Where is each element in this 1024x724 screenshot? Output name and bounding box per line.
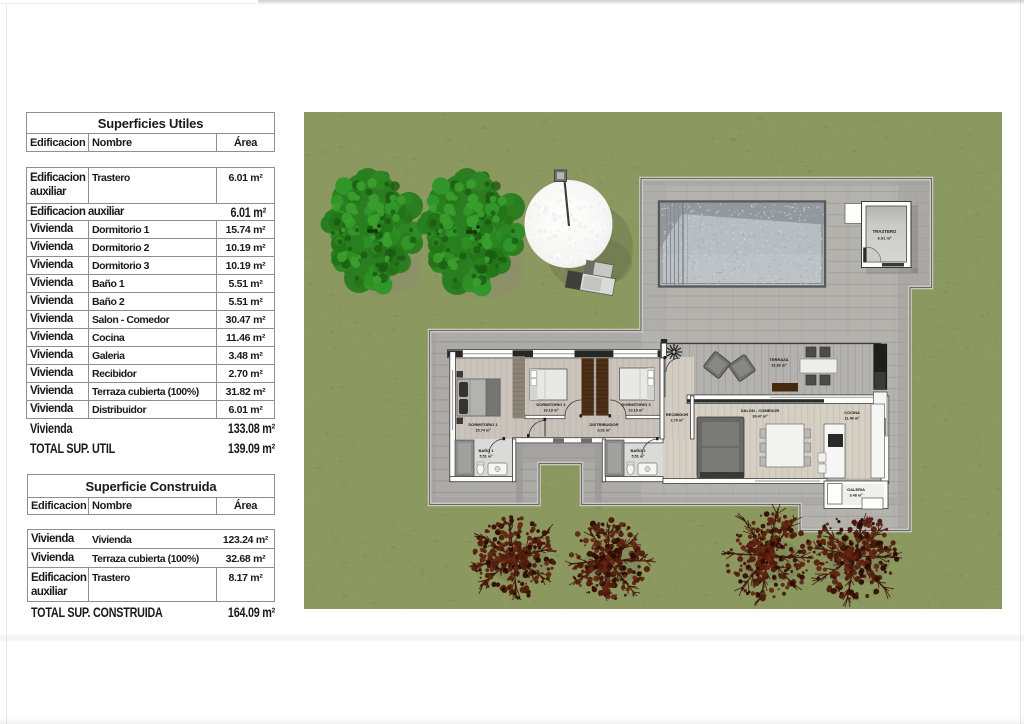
svg-text:DISTRIBUIDOR: DISTRIBUIDOR bbox=[590, 422, 619, 427]
svg-text:6.01 m²: 6.01 m² bbox=[597, 428, 611, 432]
svg-text:10.19 m²: 10.19 m² bbox=[628, 408, 644, 412]
svg-text:BAÑO 1: BAÑO 1 bbox=[478, 448, 494, 453]
svg-text:DORMITORIO 2: DORMITORIO 2 bbox=[536, 402, 566, 407]
svg-text:DORMITORIO 1: DORMITORIO 1 bbox=[468, 422, 498, 427]
svg-text:TERRAZA: TERRAZA bbox=[769, 357, 788, 362]
svg-text:DORMITORIO 3: DORMITORIO 3 bbox=[621, 402, 651, 407]
svg-text:BAÑO 2: BAÑO 2 bbox=[630, 448, 646, 453]
svg-text:10.19 m²: 10.19 m² bbox=[543, 408, 559, 412]
svg-text:30.47 m²: 30.47 m² bbox=[752, 414, 768, 418]
svg-text:RECIBIDOR: RECIBIDOR bbox=[666, 412, 689, 417]
svg-text:6.01 m²: 6.01 m² bbox=[878, 236, 892, 241]
svg-text:2.70 m²: 2.70 m² bbox=[670, 418, 684, 422]
svg-text:GALERIA: GALERIA bbox=[847, 487, 865, 492]
svg-text:5.51 m²: 5.51 m² bbox=[631, 454, 645, 458]
svg-text:COCINA: COCINA bbox=[844, 410, 860, 415]
svg-text:TRASTERO: TRASTERO bbox=[873, 229, 897, 234]
svg-text:15.74 m²: 15.74 m² bbox=[475, 428, 491, 432]
svg-text:31.82 m²: 31.82 m² bbox=[771, 363, 787, 367]
svg-text:3.48 m²: 3.48 m² bbox=[849, 493, 863, 497]
svg-text:SALON - COMEDOR: SALON - COMEDOR bbox=[741, 408, 780, 413]
svg-text:11.46 m²: 11.46 m² bbox=[845, 416, 861, 420]
svg-text:5.51 m²: 5.51 m² bbox=[479, 454, 493, 458]
